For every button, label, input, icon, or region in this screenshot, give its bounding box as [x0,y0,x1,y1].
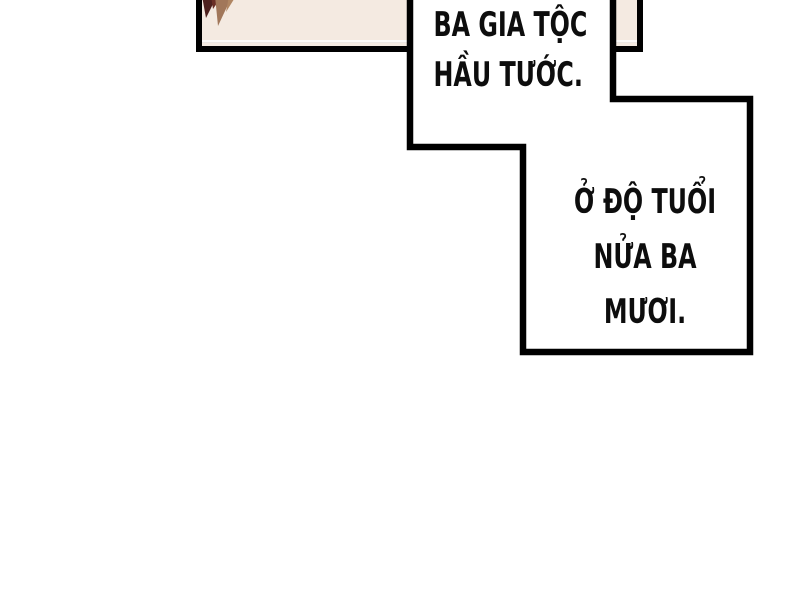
speech-line: BA GIA TỘC [434,0,581,50]
speech-line: NỬA BA [566,230,724,285]
speech-bubble-bottom-text: Ở ĐỘ TUỔI NỬA BA MƯƠI. [566,175,724,340]
comic-page: BA GIA TỘC HẦU TƯỚC. Ở ĐỘ TUỔI NỬA BA MƯ… [0,0,800,600]
speech-line: Ở ĐỘ TUỔI [566,175,724,230]
speech-line: MƯƠI. [566,285,724,340]
speech-line: HẦU TƯỚC. [434,50,581,100]
speech-bubble-top-text: BA GIA TỘC HẦU TƯỚC. [434,0,581,100]
